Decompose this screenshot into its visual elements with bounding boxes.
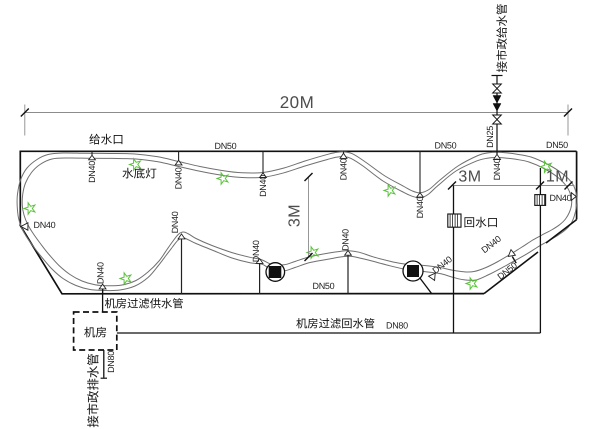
svg-text:DN40: DN40 (251, 240, 261, 262)
svg-text:水底灯: 水底灯 (122, 168, 157, 181)
svg-text:DN50: DN50 (313, 281, 335, 291)
svg-text:DN80: DN80 (386, 321, 408, 331)
svg-text:DN40: DN40 (34, 220, 56, 230)
svg-text:DN40: DN40 (338, 158, 348, 180)
svg-text:接市政排水管: 接市政排水管 (86, 353, 100, 427)
svg-text:给水口: 给水口 (89, 134, 124, 147)
svg-text:DN40: DN40 (87, 161, 97, 183)
svg-text:DN50: DN50 (215, 141, 237, 151)
svg-text:3M: 3M (458, 169, 481, 186)
svg-text:DN80: DN80 (106, 351, 116, 373)
svg-text:DN50: DN50 (435, 140, 457, 150)
svg-text:3M: 3M (287, 204, 304, 227)
svg-text:机房过滤供水管: 机房过滤供水管 (105, 298, 184, 311)
svg-text:DN25: DN25 (485, 126, 495, 148)
svg-text:机房过滤回水管: 机房过滤回水管 (296, 318, 375, 331)
svg-text:DN40: DN40 (258, 175, 268, 197)
svg-text:DN40: DN40 (415, 196, 425, 218)
svg-text:机房: 机房 (84, 327, 107, 340)
svg-text:DN40: DN40 (550, 193, 572, 203)
svg-text:接市政给水管: 接市政给水管 (496, 4, 509, 73)
svg-text:DN40: DN40 (173, 167, 183, 189)
svg-text:DN40: DN40 (170, 211, 180, 233)
svg-text:20M: 20M (280, 93, 315, 112)
svg-text:DN40: DN40 (95, 262, 105, 284)
svg-text:回水口: 回水口 (464, 217, 499, 230)
svg-text:1M: 1M (546, 169, 569, 186)
svg-text:DN40: DN40 (341, 229, 351, 251)
svg-text:DN50: DN50 (546, 140, 568, 150)
svg-text:DN40: DN40 (492, 158, 502, 180)
